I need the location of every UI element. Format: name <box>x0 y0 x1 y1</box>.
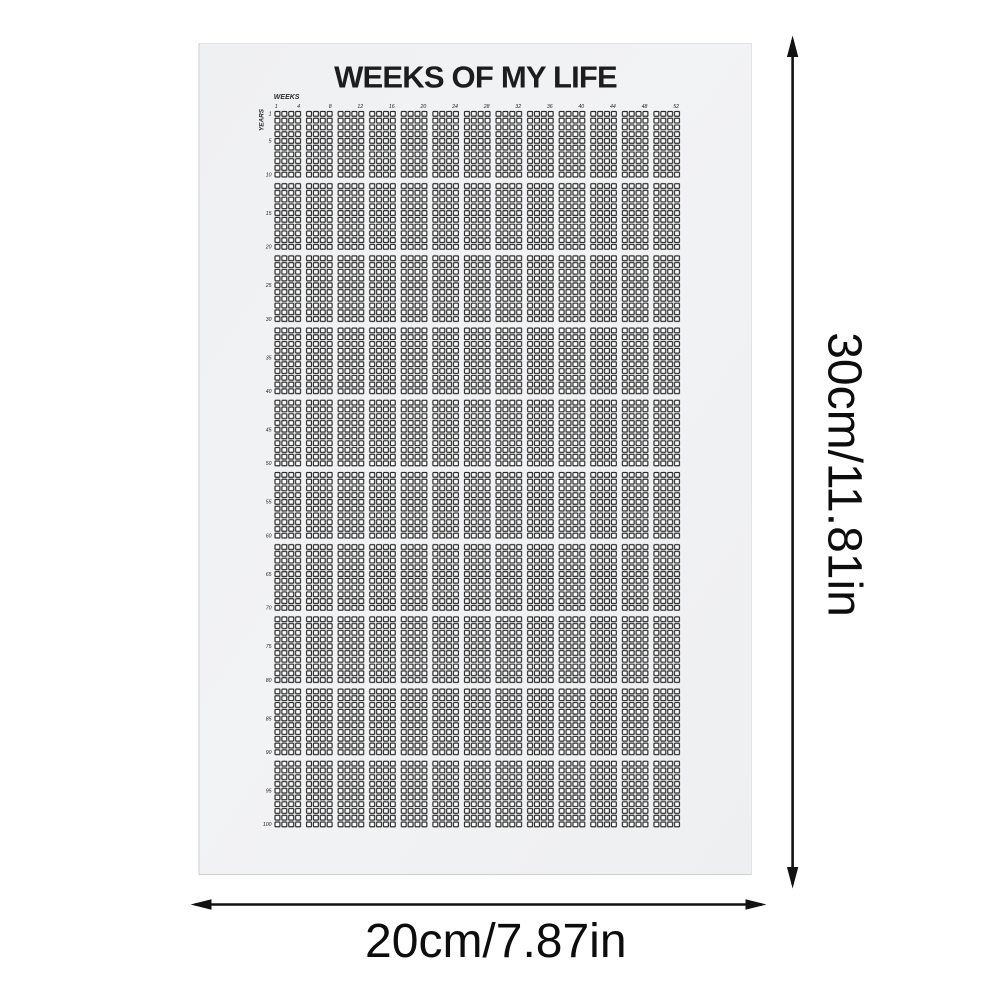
svg-text:75: 75 <box>266 644 272 650</box>
svg-text:1: 1 <box>269 112 272 118</box>
svg-text:20cm/7.87in: 20cm/7.87in <box>365 915 627 968</box>
svg-text:WEEKS OF MY LIFE: WEEKS OF MY LIFE <box>334 60 617 95</box>
svg-text:24: 24 <box>451 104 458 110</box>
svg-text:12: 12 <box>357 104 363 110</box>
svg-text:90: 90 <box>266 750 272 756</box>
svg-text:15: 15 <box>266 211 272 217</box>
svg-text:48: 48 <box>642 104 648 110</box>
svg-text:36: 36 <box>547 104 553 110</box>
svg-text:8: 8 <box>329 104 332 110</box>
svg-text:30cm/11.81in: 30cm/11.81in <box>818 332 871 617</box>
svg-text:70: 70 <box>266 606 272 612</box>
svg-text:100: 100 <box>263 822 272 828</box>
svg-text:44: 44 <box>610 104 616 110</box>
svg-text:60: 60 <box>266 533 272 539</box>
svg-text:35: 35 <box>266 355 272 361</box>
svg-text:10: 10 <box>266 172 272 178</box>
svg-text:95: 95 <box>266 789 272 795</box>
svg-text:45: 45 <box>266 428 272 434</box>
svg-text:WEEKS: WEEKS <box>274 94 300 101</box>
svg-text:1: 1 <box>275 104 278 110</box>
svg-text:85: 85 <box>266 716 272 722</box>
svg-text:5: 5 <box>269 139 272 145</box>
svg-text:20: 20 <box>420 104 427 110</box>
svg-text:50: 50 <box>266 461 272 467</box>
svg-text:28: 28 <box>483 104 490 110</box>
svg-text:80: 80 <box>266 678 272 684</box>
svg-text:16: 16 <box>389 104 395 110</box>
svg-text:40: 40 <box>266 389 272 395</box>
svg-text:30: 30 <box>266 317 272 323</box>
svg-text:55: 55 <box>266 500 272 506</box>
svg-text:4: 4 <box>297 104 300 110</box>
svg-text:YEARS: YEARS <box>259 108 266 131</box>
svg-text:65: 65 <box>266 572 272 578</box>
svg-text:40: 40 <box>578 104 584 110</box>
svg-text:32: 32 <box>515 104 521 110</box>
svg-text:20: 20 <box>265 245 272 251</box>
svg-text:52: 52 <box>673 104 679 110</box>
svg-text:25: 25 <box>265 283 272 289</box>
